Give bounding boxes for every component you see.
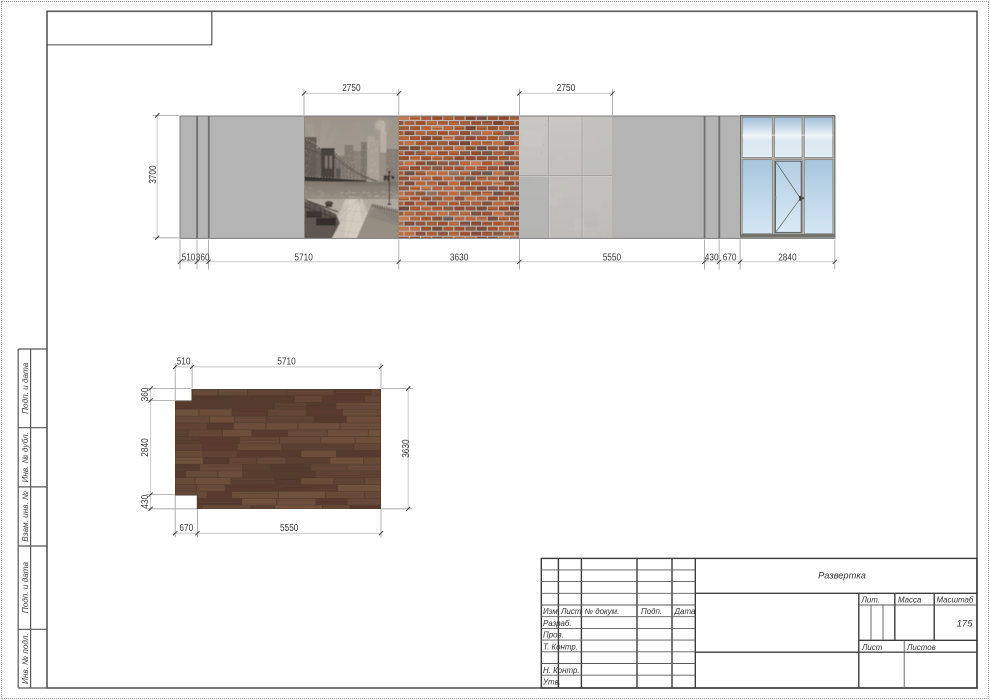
svg-text:5710: 5710 xyxy=(277,356,296,367)
svg-text:2750: 2750 xyxy=(557,83,576,94)
svg-text:2840: 2840 xyxy=(778,252,797,263)
svg-text:430: 430 xyxy=(140,494,151,508)
svg-text:Подп. и дата: Подп. и дата xyxy=(21,562,30,614)
svg-text:175: 175 xyxy=(957,619,974,630)
svg-text:3630: 3630 xyxy=(450,252,469,263)
svg-text:Разраб.: Разраб. xyxy=(543,619,572,628)
svg-text:3700: 3700 xyxy=(148,165,159,184)
svg-text:Лист: Лист xyxy=(560,607,582,616)
svg-text:Листов: Листов xyxy=(906,643,936,652)
svg-text:430: 430 xyxy=(705,252,719,263)
svg-text:670: 670 xyxy=(179,523,193,534)
svg-text:360: 360 xyxy=(140,387,151,401)
svg-text:2840: 2840 xyxy=(140,438,151,457)
svg-text:Т. Контр.: Т. Контр. xyxy=(543,642,578,651)
svg-text:Подп.: Подп. xyxy=(641,607,662,616)
svg-text:510: 510 xyxy=(177,356,191,367)
svg-text:510: 510 xyxy=(182,252,196,263)
svg-text:360: 360 xyxy=(196,252,210,263)
svg-text:Масштаб: Масштаб xyxy=(937,596,974,605)
svg-text:Инв. № дубл.: Инв. № дубл. xyxy=(21,432,30,482)
svg-text:5550: 5550 xyxy=(603,252,622,263)
svg-text:Взам. инв. №: Взам. инв. № xyxy=(21,491,30,542)
svg-text:Масса: Масса xyxy=(898,596,922,605)
svg-text:Пров.: Пров. xyxy=(543,631,564,640)
svg-text:Развертка: Развертка xyxy=(818,571,866,581)
svg-text:5710: 5710 xyxy=(294,252,313,263)
svg-text:№ докум.: № докум. xyxy=(585,607,620,616)
svg-text:Дата: Дата xyxy=(674,607,696,616)
svg-text:Лит.: Лит. xyxy=(861,596,880,605)
svg-text:Подп. и дата: Подп. и дата xyxy=(21,362,30,414)
svg-text:Инв. № подл.: Инв. № подл. xyxy=(21,633,30,684)
svg-text:Н. Контр.: Н. Контр. xyxy=(543,666,580,675)
svg-text:Лист: Лист xyxy=(861,643,883,652)
svg-text:Изм.: Изм. xyxy=(543,607,560,616)
svg-text:670: 670 xyxy=(723,252,737,263)
svg-text:3630: 3630 xyxy=(401,439,412,458)
svg-text:Утв.: Утв. xyxy=(542,678,561,687)
svg-text:2750: 2750 xyxy=(342,83,361,94)
svg-text:5550: 5550 xyxy=(280,523,299,534)
